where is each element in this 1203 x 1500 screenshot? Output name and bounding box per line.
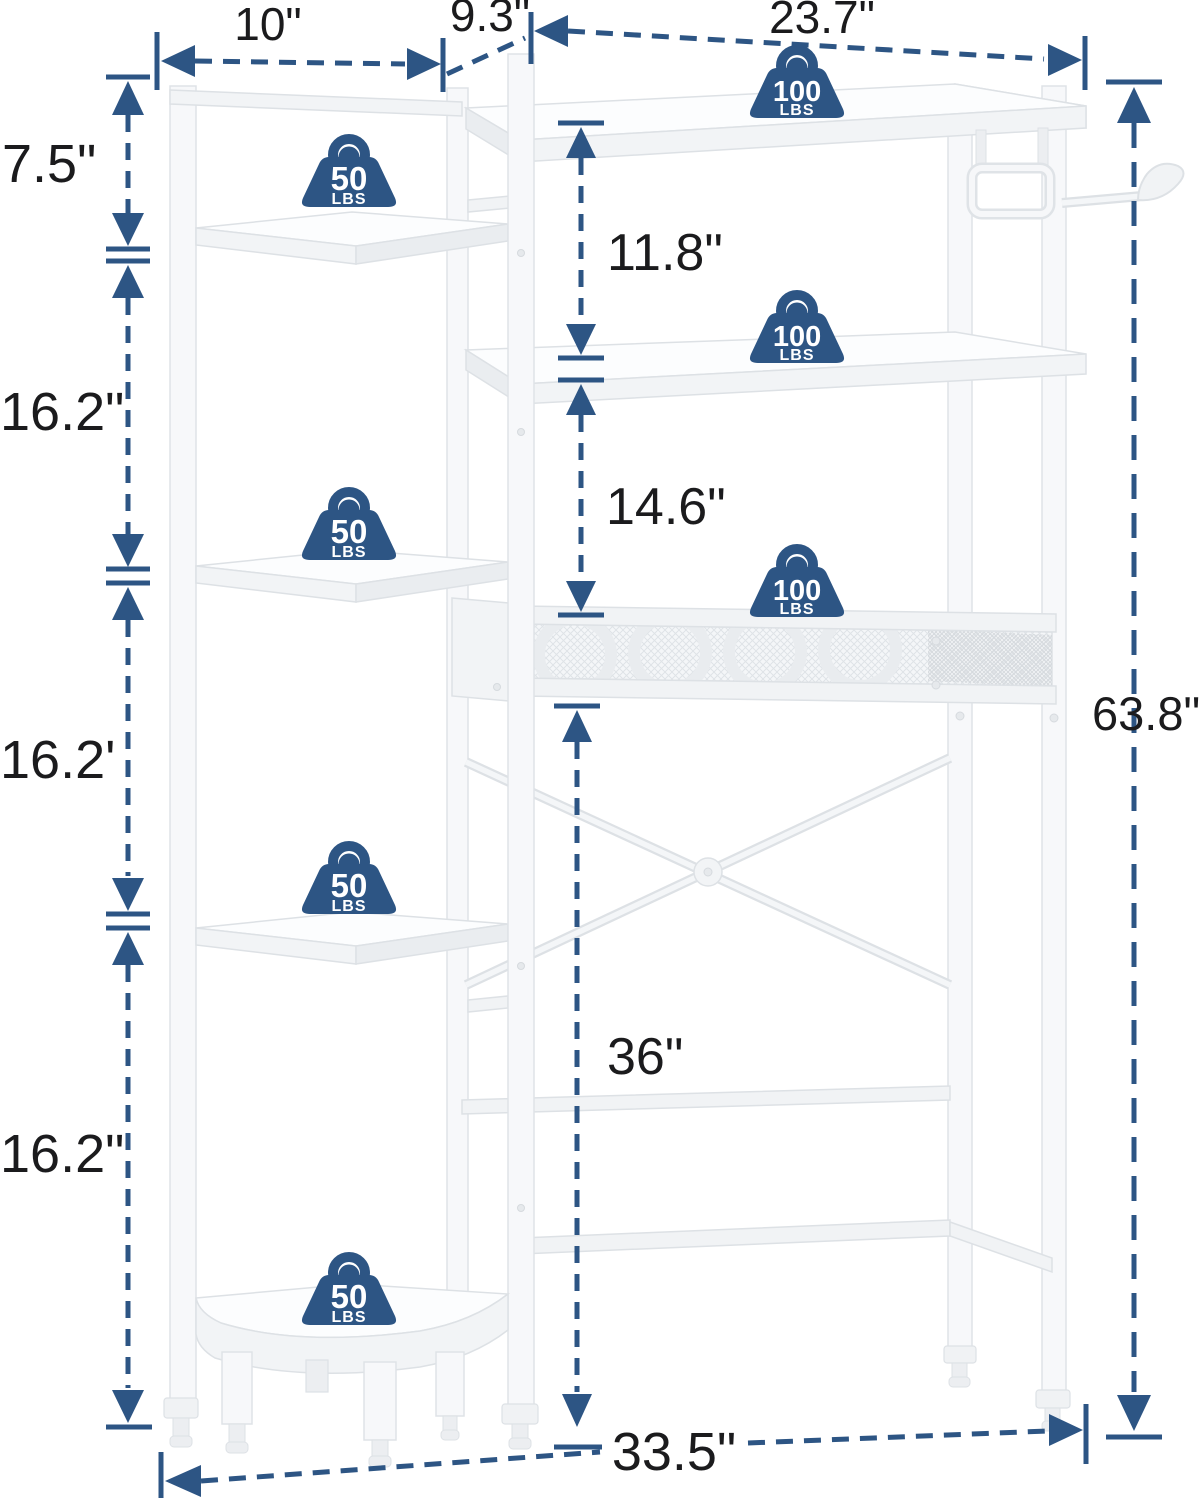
capacity-badge-100lbs-2: 100 LBS bbox=[750, 295, 844, 364]
left-rung-top bbox=[468, 196, 510, 212]
dim-label-11-8in: 11.8" bbox=[607, 224, 723, 282]
badge-unit: LBS bbox=[780, 601, 815, 618]
side-hook bbox=[1062, 164, 1184, 203]
tower-left-foot-stem bbox=[173, 1418, 189, 1438]
arrowhead-down bbox=[112, 878, 144, 911]
dim-label-16-2in-1: 16.2" bbox=[0, 382, 124, 442]
dim-tower-gap-1: 16.2" bbox=[0, 265, 150, 583]
front-right-post bbox=[1042, 86, 1066, 1392]
dashes bbox=[195, 61, 405, 64]
dim-label-14-6in: 14.6" bbox=[606, 478, 726, 536]
dim-label-63-8in: 63.8" bbox=[1092, 687, 1200, 740]
product-dimension-diagram: 50 LBS 50 LBS 50 LBS 50 LBS 100 LBS 100 … bbox=[0, 0, 1203, 1500]
towel-ring-outer bbox=[972, 168, 1050, 214]
capacity-badge-50lbs-3: 50 LBS bbox=[302, 846, 396, 915]
badge-unit: LBS bbox=[332, 544, 367, 561]
badge-unit: LBS bbox=[332, 1309, 367, 1326]
dim-label-7-5in: 7.5" bbox=[2, 134, 96, 194]
basket-screw bbox=[494, 684, 501, 691]
arrowhead-right bbox=[1048, 44, 1082, 76]
hook-tip bbox=[1138, 164, 1184, 200]
brace-center-screw bbox=[704, 868, 712, 876]
dim-tower-gap-2: 16.2' bbox=[0, 587, 150, 928]
diagram-svg: 50 LBS 50 LBS 50 LBS 50 LBS 100 LBS 100 … bbox=[0, 0, 1203, 1500]
arrowhead-right bbox=[407, 48, 441, 80]
dim-label-9-3in: 9.3" bbox=[450, 0, 530, 41]
stool-foot-tip bbox=[369, 1456, 391, 1467]
tower-left-foot-tip bbox=[170, 1436, 192, 1447]
basket-mesh-dense bbox=[928, 629, 1052, 687]
badge-unit: LBS bbox=[332, 191, 367, 208]
front-right-foot bbox=[1036, 1390, 1070, 1408]
dim-label-23-7in: 23.7" bbox=[769, 0, 875, 43]
stool-leg bbox=[436, 1352, 464, 1416]
arrowhead-down bbox=[112, 1390, 144, 1423]
dim-label-16-2ft: 16.2' bbox=[0, 730, 115, 790]
arrowhead-up bbox=[112, 587, 144, 620]
post-screw bbox=[518, 1205, 525, 1212]
arrowhead-down bbox=[562, 1394, 592, 1427]
dim-tower-top-gap: 7.5" bbox=[2, 77, 150, 261]
post-screw bbox=[518, 250, 525, 257]
arrowhead-up bbox=[112, 932, 144, 965]
dim-total-height: 63.8" bbox=[1092, 82, 1200, 1437]
capacity-badge-50lbs-4: 50 LBS bbox=[302, 1257, 396, 1326]
tower-top-rail bbox=[170, 90, 462, 116]
arrowhead-up bbox=[112, 81, 144, 115]
stool-foot-tip bbox=[226, 1442, 248, 1453]
post-screw bbox=[956, 712, 964, 720]
front-left-foot-tip bbox=[509, 1438, 531, 1449]
x-cross-brace bbox=[466, 758, 950, 985]
back-bottom-rail bbox=[462, 1086, 950, 1114]
back-right-foot bbox=[944, 1346, 976, 1363]
dim-left-tower-width: 10" bbox=[157, 0, 443, 92]
stool-foot-stem bbox=[229, 1424, 245, 1444]
dashes bbox=[201, 1452, 600, 1481]
towel-holder bbox=[972, 128, 1050, 214]
badge-unit: LBS bbox=[780, 102, 815, 119]
capacity-badge-100lbs-1: 100 LBS bbox=[750, 50, 844, 119]
tower-left-post bbox=[170, 86, 196, 1400]
front-bottom-rail bbox=[521, 1220, 950, 1254]
dashes bbox=[748, 1431, 1048, 1443]
left-rung-bottom bbox=[468, 996, 508, 1012]
stool-foot-stem bbox=[372, 1440, 388, 1458]
arrowhead-left bbox=[534, 15, 568, 47]
dim-tower-gap-3: 16.2" bbox=[0, 932, 152, 1427]
capacity-badge-50lbs-1: 50 LBS bbox=[302, 139, 396, 208]
towel-ring-inner bbox=[972, 168, 1050, 214]
arrowhead-up bbox=[1117, 87, 1151, 123]
dim-top-to-second-shelf: 11.8" bbox=[558, 123, 723, 358]
post-screw bbox=[518, 429, 525, 436]
dim-label-36in: 36" bbox=[607, 1028, 683, 1086]
arrowhead-left bbox=[161, 45, 195, 77]
arrowhead-up bbox=[112, 265, 144, 298]
arrowhead-left bbox=[165, 1465, 201, 1497]
basket-screw bbox=[932, 637, 940, 645]
capacity-badge-100lbs-3: 100 LBS bbox=[750, 549, 844, 618]
post-screw bbox=[518, 963, 525, 970]
capacity-badge-50lbs-2: 50 LBS bbox=[302, 492, 396, 561]
stool-back-leg bbox=[306, 1360, 328, 1392]
arrowhead-down bbox=[112, 534, 144, 567]
badge-unit: LBS bbox=[332, 898, 367, 915]
stool-leg bbox=[222, 1352, 252, 1424]
back-right-foot-tip bbox=[949, 1377, 970, 1387]
stool-leg bbox=[364, 1362, 396, 1440]
dim-total-width: 33.5" bbox=[161, 1404, 1086, 1498]
badge-unit: LBS bbox=[780, 347, 815, 364]
dim-label-16-2in-2: 16.2" bbox=[0, 1124, 124, 1184]
dim-clearance-height: 36" bbox=[554, 706, 683, 1447]
dim-label-10in: 10" bbox=[234, 0, 302, 50]
tower-left-foot bbox=[164, 1398, 198, 1418]
arrowhead-right bbox=[1049, 1414, 1083, 1446]
stool-foot-tip bbox=[441, 1430, 459, 1440]
basket-screw bbox=[932, 681, 940, 689]
post-screw bbox=[1050, 714, 1058, 722]
dim-label-33-5in: 33.5" bbox=[612, 1422, 736, 1482]
arrowhead-down bbox=[1117, 1395, 1151, 1431]
dim-second-shelf-to-basket: 14.6" bbox=[558, 380, 726, 615]
arrowhead-down bbox=[112, 213, 144, 246]
front-left-foot bbox=[502, 1404, 538, 1424]
arrowhead-up bbox=[562, 710, 592, 742]
